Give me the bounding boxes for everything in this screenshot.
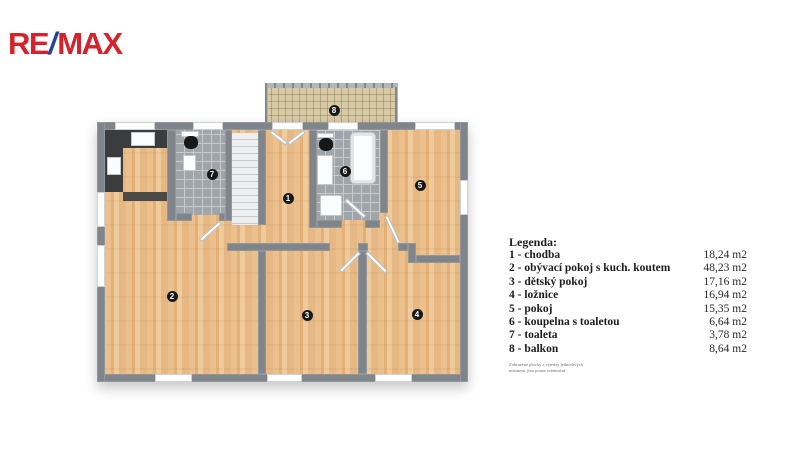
wood-floor [105,130,460,374]
legend-area: 8,64 m2 [709,343,747,356]
legend-area: 18,24 m2 [704,249,747,262]
legend-area: 6,64 m2 [709,316,747,329]
legend-row-3: 3 - dětský pokoj 17,16 m2 [509,276,747,289]
legend-area: 48,23 m2 [704,262,747,275]
wall-room4-door-jamb [398,243,408,251]
legend-label: 7 - toaleta [509,329,558,342]
toilet-room-sink [183,155,196,171]
room-marker-2: 2 [167,291,178,302]
shower-base [320,195,342,216]
balcony-door-opening [272,122,303,130]
remax-logo: RE/MAX [8,26,122,62]
logo-max-text: MAX [57,26,121,61]
legend-row-6: 6 - koupelna s toaletou 6,64 m2 [509,316,747,329]
balcony-railing-right [395,87,398,122]
window-top-stairs [193,122,223,130]
room-marker-3: 3 [302,310,313,321]
legend-area: 15,35 m2 [704,303,747,316]
bathroom-vanity [317,155,333,185]
wall-stairs-hall [258,130,266,225]
legend-row-5: 5 - pokoj 15,35 m2 [509,303,747,316]
legend-row-4: 4 - ložnice 16,94 m2 [509,289,747,302]
legend-label: 8 - balkon [509,343,558,356]
floorplan: 1 2 3 4 5 6 7 8 [97,83,470,392]
wall-bathroom-south [317,220,342,228]
disclaimer-line-2: místností jsou pouze orientační [509,368,747,374]
window-top-kitchen [115,122,155,130]
legend-label: 1 - chodba [509,249,560,262]
window-left-1 [97,192,105,227]
legend-label: 3 - dětský pokoj [509,276,587,289]
window-bathroom-balcony [328,122,358,130]
legend-row-7: 7 - toaleta 3,78 m2 [509,329,747,342]
wall-room2-room3 [258,251,266,374]
wall-toilet-south [176,213,192,221]
room-marker-1: 1 [283,193,294,204]
wall-hall-bathroom [309,130,317,228]
legend-title: Legenda: [509,235,747,249]
legend-area: 17,16 m2 [704,276,747,289]
legend-label: 2 - obývací pokoj s kuch. koutem [509,262,670,275]
balcony-railing [265,83,398,88]
outer-wall-right [460,122,468,382]
kitchen-wall [123,192,167,201]
balcony-railing-left [265,87,268,122]
wall-room5-jog [408,243,416,263]
legend-row-2: 2 - obývací pokoj s kuch. koutem 48,23 m… [509,262,747,275]
legend-disclaimer: Zobrazené plochy a výměry jednotlivých m… [509,362,747,373]
legend-row-8: 8 - balkon 8,64 m2 [509,343,747,356]
window-bottom-room4 [375,374,412,382]
legend: Legenda: 1 - chodba 18,24 m2 2 - obývací… [509,235,747,373]
bathtub [350,132,376,184]
legend-area: 16,94 m2 [704,289,747,302]
legend-label: 5 - pokoj [509,303,552,316]
wall-room5-room4 [416,255,460,263]
kitchen-sink [131,132,155,146]
wall-room3-room4 [358,251,367,374]
room-marker-5: 5 [415,180,426,191]
wall-toilet-stairs [225,130,232,221]
page: RE/MAX [0,0,806,468]
bathroom-toilet-icon [319,138,333,151]
staircase [232,133,258,225]
window-bottom-room3 [267,374,302,382]
window-bottom-room2 [155,374,192,382]
window-right-room5 [460,180,468,215]
window-top-room5 [415,122,455,130]
logo-re-text: RE [8,26,48,61]
room-marker-7: 7 [207,169,218,180]
room-marker-8: 8 [329,105,340,116]
wall-bathroom-south-2 [365,220,380,228]
wall-room3-door-jamb [358,243,368,251]
wall-kitchen-toilet [167,130,176,221]
legend-label: 4 - ložnice [509,289,558,302]
room-marker-4: 4 [412,309,423,320]
kitchen-appliance [107,157,121,175]
wall-hall-room3 [227,243,330,251]
legend-label: 6 - koupelna s toaletou [509,316,620,329]
room-marker-6: 6 [340,166,351,177]
wall-bathroom-room5 [380,130,388,213]
legend-area: 3,78 m2 [709,329,747,342]
toilet-icon [184,136,198,149]
legend-row-1: 1 - chodba 18,24 m2 [509,249,747,262]
window-left-2 [97,245,105,287]
